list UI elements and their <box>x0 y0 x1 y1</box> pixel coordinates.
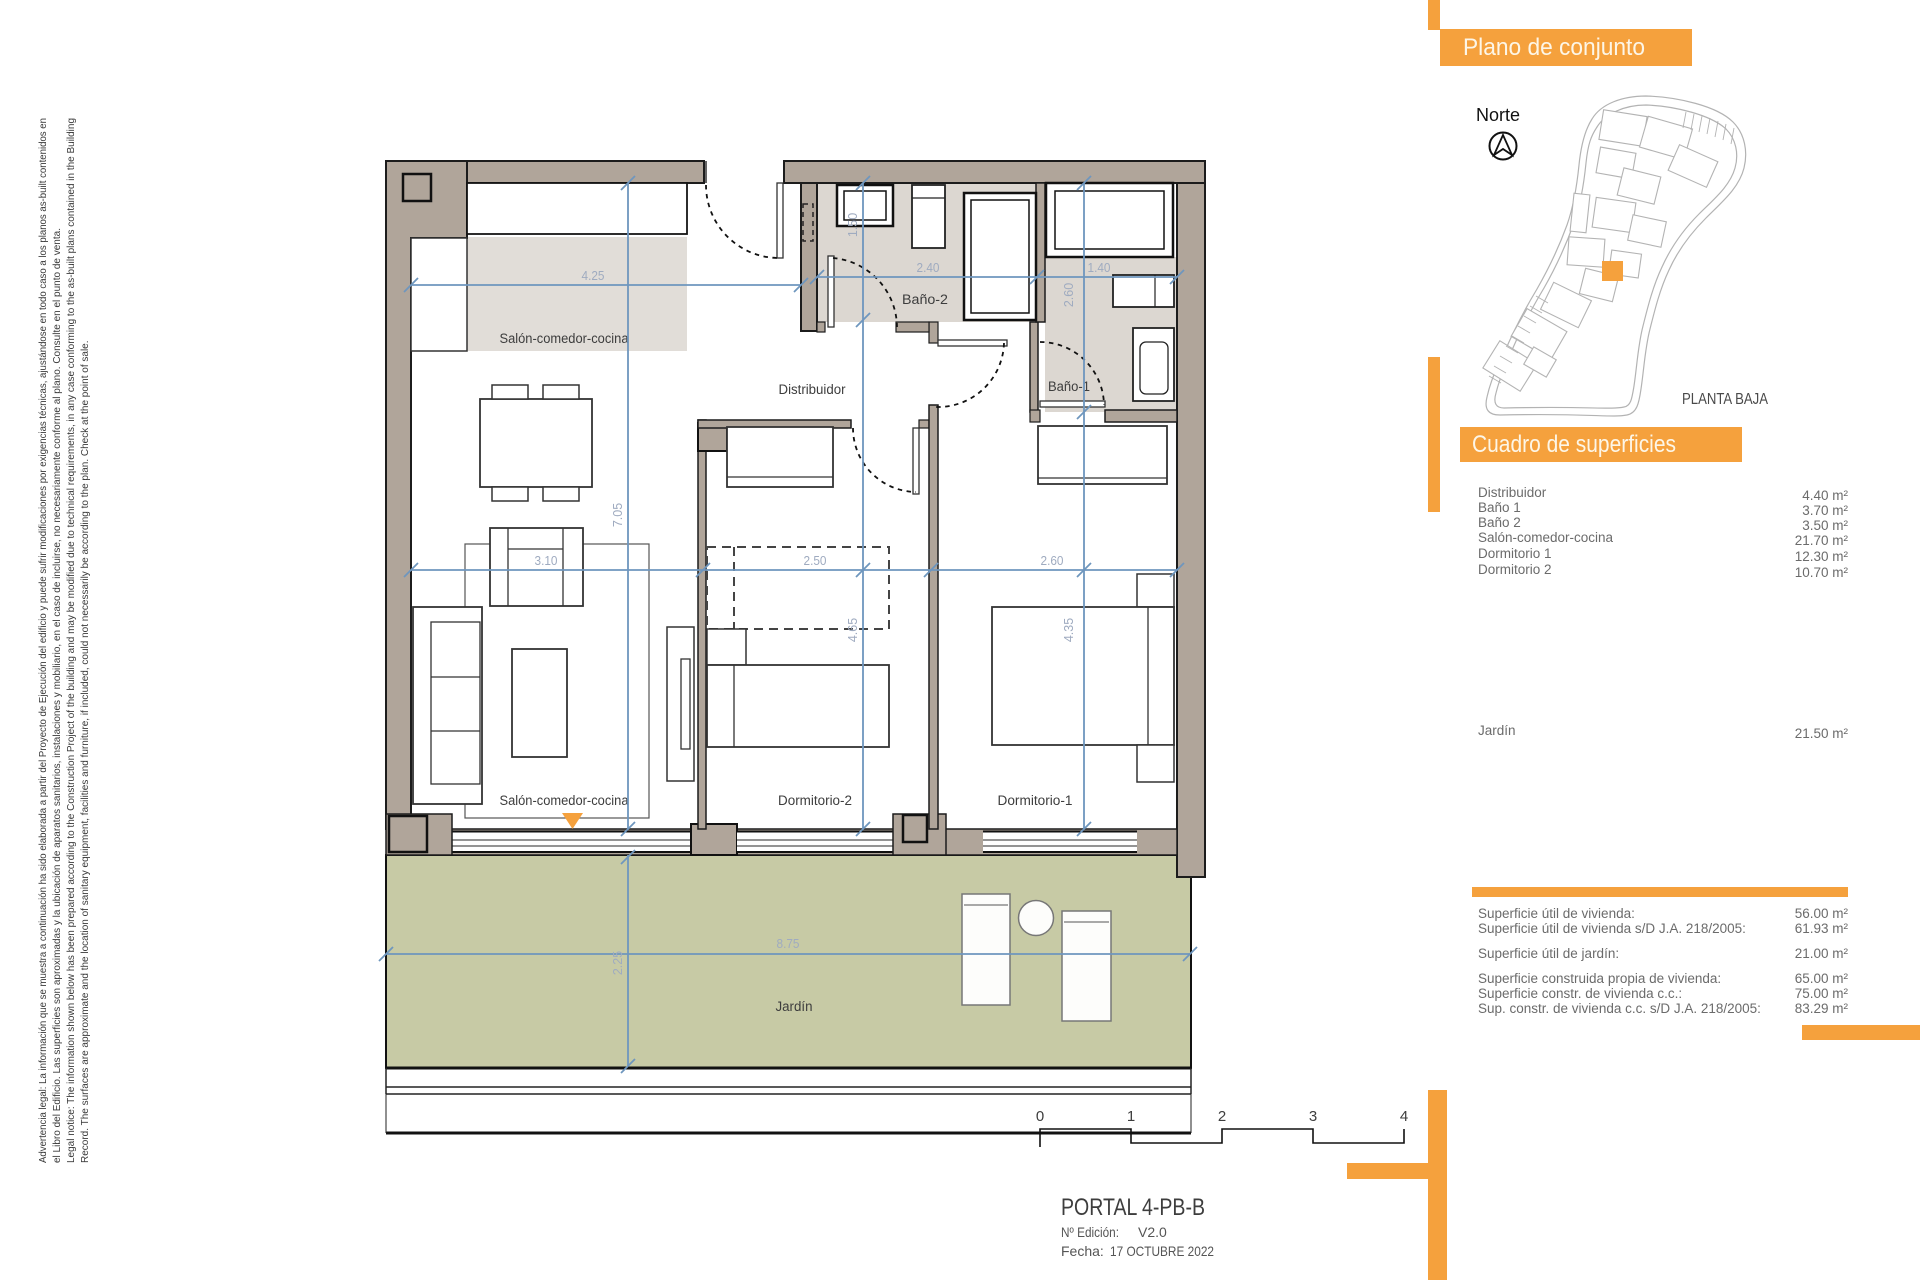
svg-text:Jardín: Jardín <box>1478 723 1516 738</box>
svg-text:2.25: 2.25 <box>611 951 625 975</box>
svg-text:el Libro del Edificio. Las sup: el Libro del Edificio. Las superficies s… <box>52 228 63 1163</box>
svg-text:21.70 m²: 21.70 m² <box>1795 533 1849 548</box>
svg-text:Baño 2: Baño 2 <box>1478 515 1521 530</box>
svg-text:12.30 m²: 12.30 m² <box>1795 549 1849 564</box>
svg-text:Distribuidor: Distribuidor <box>779 382 846 397</box>
svg-text:4.40 m²: 4.40 m² <box>1802 488 1848 503</box>
svg-text:Record. The surfaces are appro: Record. The surfaces are approximate and… <box>80 340 91 1163</box>
svg-text:65.00 m²: 65.00 m² <box>1795 971 1849 986</box>
svg-text:Superficie construida propia d: Superficie construida propia de vivienda… <box>1478 971 1721 986</box>
svg-text:Legal notice: The information: Legal notice: The information shown belo… <box>66 118 77 1163</box>
svg-text:2.60: 2.60 <box>1041 554 1064 568</box>
svg-text:61.93 m²: 61.93 m² <box>1795 921 1849 936</box>
svg-text:Salón-comedor-cocina: Salón-comedor-cocina <box>1478 530 1614 545</box>
svg-text:7.05: 7.05 <box>611 503 625 527</box>
svg-text:Superficie útil de vivienda:: Superficie útil de vivienda: <box>1478 906 1635 921</box>
svg-text:Jardín: Jardín <box>776 999 813 1014</box>
svg-text:4.65: 4.65 <box>846 618 860 642</box>
svg-text:PORTAL 4-PB-B: PORTAL 4-PB-B <box>1061 1194 1205 1221</box>
svg-text:V2.0: V2.0 <box>1138 1224 1167 1240</box>
svg-text:Salón-comedor-cocina: Salón-comedor-cocina <box>500 793 629 808</box>
svg-text:4.35: 4.35 <box>1062 618 1076 642</box>
svg-text:8.75: 8.75 <box>777 937 800 951</box>
svg-text:Plano de conjunto: Plano de conjunto <box>1463 34 1645 61</box>
svg-text:Dormitorio-2: Dormitorio-2 <box>778 793 852 808</box>
svg-text:Distribuidor: Distribuidor <box>1478 485 1547 500</box>
svg-text:1.40: 1.40 <box>1088 261 1111 275</box>
svg-text:83.29 m²: 83.29 m² <box>1795 1001 1849 1016</box>
svg-text:56.00 m²: 56.00 m² <box>1795 906 1849 921</box>
svg-text:21.00 m²: 21.00 m² <box>1795 946 1849 961</box>
svg-text:2.60: 2.60 <box>1062 283 1076 307</box>
svg-text:Fecha:: Fecha: <box>1061 1243 1104 1259</box>
svg-text:4: 4 <box>1400 1108 1408 1125</box>
svg-text:0: 0 <box>1036 1108 1044 1125</box>
svg-text:3: 3 <box>1309 1108 1317 1125</box>
svg-text:Dormitorio 1: Dormitorio 1 <box>1478 546 1552 561</box>
svg-text:2: 2 <box>1218 1108 1226 1125</box>
svg-text:PLANTA BAJA: PLANTA BAJA <box>1682 391 1768 408</box>
svg-text:Baño-2: Baño-2 <box>902 292 948 307</box>
svg-text:Salón-comedor-cocina: Salón-comedor-cocina <box>500 331 629 346</box>
svg-text:Superficie constr. de vivienda: Superficie constr. de vivienda c.c.: <box>1478 986 1682 1001</box>
svg-text:17 OCTUBRE 2022: 17 OCTUBRE 2022 <box>1110 1243 1214 1259</box>
svg-text:3.70 m²: 3.70 m² <box>1802 503 1848 518</box>
svg-text:Advertencia legal: La informac: Advertencia legal: La información que se… <box>38 118 49 1163</box>
svg-text:3.50 m²: 3.50 m² <box>1802 518 1848 533</box>
svg-text:21.50 m²: 21.50 m² <box>1795 726 1849 741</box>
svg-text:10.70 m²: 10.70 m² <box>1795 565 1849 580</box>
svg-text:1.50: 1.50 <box>846 213 860 237</box>
svg-text:3.10: 3.10 <box>535 554 558 568</box>
svg-text:Dormitorio 2: Dormitorio 2 <box>1478 562 1552 577</box>
svg-text:Nº Edición:: Nº Edición: <box>1061 1224 1119 1240</box>
svg-text:75.00 m²: 75.00 m² <box>1795 986 1849 1001</box>
svg-text:Sup. constr. de vivienda c.c.: Sup. constr. de vivienda c.c. s/D J.A. 2… <box>1478 1001 1761 1016</box>
svg-text:2.50: 2.50 <box>804 554 827 568</box>
svg-text:Dormitorio-1: Dormitorio-1 <box>998 793 1073 808</box>
svg-text:4.25: 4.25 <box>582 269 605 283</box>
svg-text:Superficie útil de vivienda s/: Superficie útil de vivienda s/D J.A. 218… <box>1478 921 1746 936</box>
svg-text:2.40: 2.40 <box>917 261 940 275</box>
svg-text:1: 1 <box>1127 1108 1135 1125</box>
svg-text:Baño 1: Baño 1 <box>1478 500 1521 515</box>
svg-text:Superficie útil de jardín:: Superficie útil de jardín: <box>1478 946 1619 961</box>
svg-text:Cuadro de superficies: Cuadro de superficies <box>1472 431 1676 458</box>
svg-text:Norte: Norte <box>1476 105 1520 125</box>
